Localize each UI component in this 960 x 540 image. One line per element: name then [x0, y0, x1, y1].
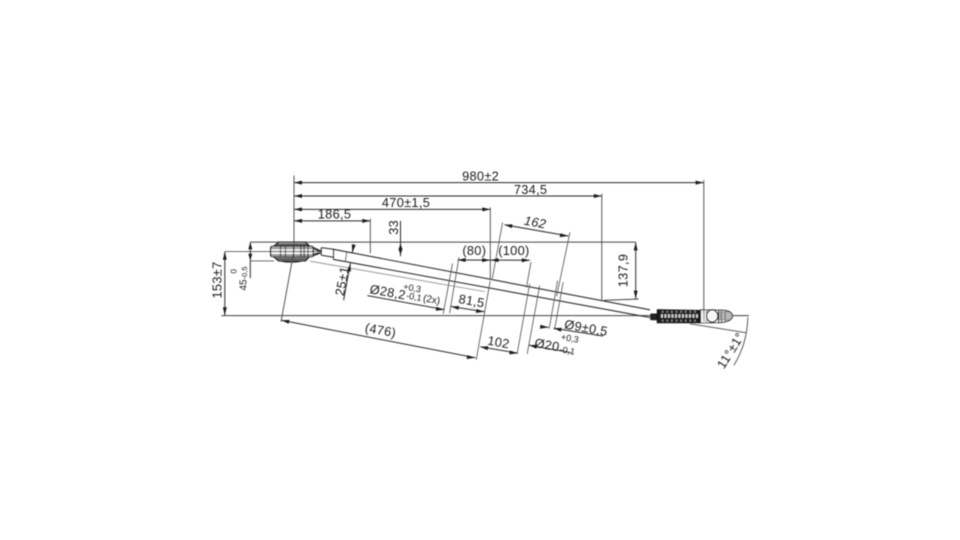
svg-text:-0,1: -0,1	[559, 344, 576, 357]
svg-text:186,5: 186,5	[318, 207, 352, 222]
svg-text:0: 0	[230, 269, 239, 274]
svg-text:980±2: 980±2	[462, 169, 499, 184]
svg-text:-0,1: -0,1	[405, 291, 422, 304]
svg-text:(2x): (2x)	[422, 293, 441, 307]
svg-text:470±1,5: 470±1,5	[382, 195, 430, 210]
svg-text:25±1: 25±1	[332, 265, 352, 297]
svg-text:81,5: 81,5	[458, 291, 486, 310]
svg-text:33: 33	[386, 220, 401, 235]
svg-text:11°±1°: 11°±1°	[714, 330, 748, 371]
svg-text:Ø20: Ø20	[533, 335, 560, 354]
svg-text:+0,3: +0,3	[560, 332, 579, 345]
svg-text:734,5: 734,5	[514, 182, 548, 197]
svg-text:Ø28,2: Ø28,2	[369, 281, 407, 302]
svg-text:153±7: 153±7	[210, 262, 225, 299]
svg-text:137,9: 137,9	[615, 254, 630, 288]
svg-text:45-0,5: 45-0,5	[238, 266, 249, 290]
svg-text:(100): (100)	[498, 243, 529, 258]
svg-text:(80): (80)	[462, 243, 486, 258]
